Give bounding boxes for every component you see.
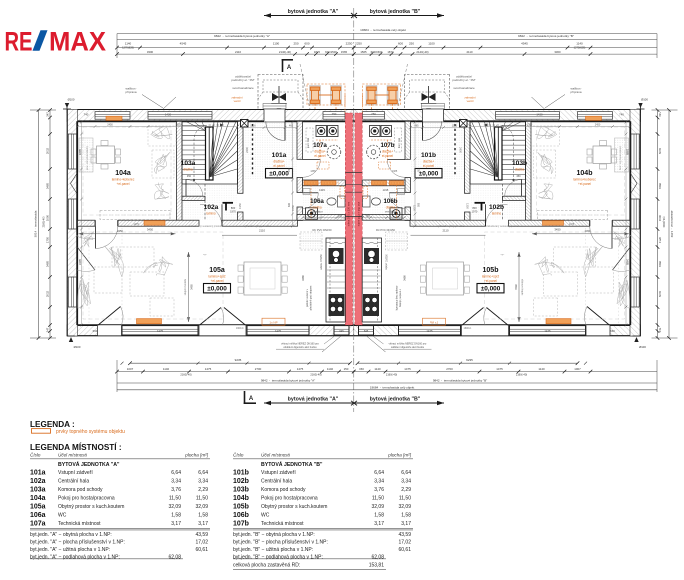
svg-text:1385: 1385 <box>392 170 398 173</box>
svg-text:2450: 2450 <box>585 229 591 233</box>
svg-text:4545: 4545 <box>180 42 187 46</box>
svg-text:+el.panel: +el.panel <box>484 279 497 283</box>
svg-text:2160(-40): 2160(-40) <box>42 216 45 227</box>
svg-text:dlažba: dlažba <box>183 167 193 171</box>
svg-text:105a: 105a <box>30 504 46 511</box>
svg-text:700: 700 <box>288 167 291 172</box>
svg-text:odsáv. DN150: odsáv. DN150 <box>320 254 323 270</box>
svg-text:ventil: ventil <box>234 99 241 103</box>
svg-text:103b: 103b <box>233 486 249 493</box>
svg-text:byt.jedn. "A" − užitná plocha: byt.jedn. "A" − užitná plocha v 1.NP: <box>30 547 110 553</box>
svg-text:750: 750 <box>332 112 337 116</box>
svg-text:1000: 1000 <box>658 214 662 221</box>
svg-text:2160(-40): 2160(-40) <box>310 372 321 376</box>
svg-text:1420: 1420 <box>165 112 172 116</box>
svg-text:11,50: 11,50 <box>372 496 384 502</box>
svg-text:bytová jednotka "B": bytová jednotka "B" <box>370 9 421 15</box>
svg-text:1565: 1565 <box>341 50 348 54</box>
svg-text:450: 450 <box>187 175 192 178</box>
svg-text:1007: 1007 <box>574 367 581 371</box>
svg-text:1750: 1750 <box>45 236 49 243</box>
svg-text:32,09: 32,09 <box>168 504 181 510</box>
svg-text:102a: 102a <box>204 204 219 211</box>
svg-text:3450: 3450 <box>147 228 154 232</box>
svg-text:600: 600 <box>304 42 309 46</box>
svg-text:104a: 104a <box>30 495 46 502</box>
svg-text:1,58: 1,58 <box>171 513 181 519</box>
svg-text:1475: 1475 <box>275 329 282 333</box>
svg-text:32,09: 32,09 <box>398 504 411 510</box>
svg-text:Ø100: Ø100 <box>641 98 648 102</box>
svg-text:BYTOVÁ JEDNOTKA "A": BYTOVÁ JEDNOTKA "A" <box>58 461 120 468</box>
svg-text:9842 - termofasáda bytové je: 9842 - termofasáda bytové jednotky "A" <box>214 34 270 38</box>
svg-text:3814 - termofasáda: 3814 - termofasáda <box>670 210 674 237</box>
svg-text:1475: 1475 <box>297 367 304 371</box>
svg-text:zabudovaný vestavěný prostor: zabudovaný vestavěný prostor <box>189 225 222 228</box>
svg-text:1420: 1420 <box>536 112 543 116</box>
svg-text:3480: 3480 <box>301 275 305 281</box>
svg-text:stupeň montáže: stupeň montáže <box>521 278 524 295</box>
svg-text:A: A <box>249 396 254 402</box>
svg-text:3,34: 3,34 <box>374 478 384 484</box>
svg-text:3,34: 3,34 <box>401 478 411 484</box>
svg-text:1100: 1100 <box>428 42 435 46</box>
svg-text:1350: 1350 <box>238 203 242 209</box>
svg-text:odsáv. DN150: odsáv. DN150 <box>385 254 388 270</box>
svg-text:1475: 1475 <box>569 223 575 226</box>
svg-text:3450: 3450 <box>554 228 561 232</box>
svg-text:2,29: 2,29 <box>401 487 411 493</box>
svg-text:103a: 103a <box>181 160 196 167</box>
svg-text:2140(-40): 2140(-40) <box>416 50 428 54</box>
svg-text:plocha [m²]: plocha [m²] <box>184 452 208 457</box>
svg-text:1100: 1100 <box>273 42 280 46</box>
svg-text:3,17: 3,17 <box>198 521 208 527</box>
svg-text:3485: 3485 <box>45 260 49 267</box>
svg-text:ventilátor: ventilátor <box>311 210 322 214</box>
svg-text:2160(-40): 2160(-40) <box>180 372 191 376</box>
svg-text:3,76: 3,76 <box>374 487 384 493</box>
svg-text:102b: 102b <box>233 478 249 485</box>
svg-text:4545: 4545 <box>521 42 528 46</box>
svg-text:1870: 1870 <box>387 50 394 54</box>
svg-text:465: 465 <box>289 125 294 128</box>
svg-text:1600-tl.: 1600-tl. <box>236 327 244 330</box>
svg-text:Pokoj pro hosta/pracovna: Pokoj pro hosta/pracovna <box>58 496 115 502</box>
svg-text:101b: 101b <box>233 469 249 476</box>
svg-text:bytová jednotka "A": bytová jednotka "A" <box>288 9 339 15</box>
svg-text:800: 800 <box>288 202 291 207</box>
svg-text:podružný el. "JM": podružný el. "JM" <box>452 78 475 82</box>
svg-text:el.panel: el.panel <box>314 154 325 158</box>
svg-text:2,29: 2,29 <box>198 487 208 493</box>
svg-text:byt.jedn. "A" − obytná plocha: byt.jedn. "A" − obytná plocha v 1.NP: <box>30 532 112 538</box>
svg-text:1475: 1475 <box>133 223 139 226</box>
svg-text:stěna DP1 ≥ 220 mm: stěna DP1 ≥ 220 mm <box>357 202 361 226</box>
svg-text:1350: 1350 <box>466 203 470 209</box>
svg-text:svod kanalizace: svod kanalizace <box>232 86 254 90</box>
svg-text:3300: 3300 <box>147 50 154 54</box>
svg-text:43,59: 43,59 <box>195 532 208 538</box>
svg-text:1x NP: 1x NP <box>269 320 277 324</box>
svg-text:2110: 2110 <box>259 229 265 233</box>
svg-text:2450: 2450 <box>107 124 113 127</box>
svg-text:60,61: 60,61 <box>398 547 411 553</box>
svg-text:Vstupní zádveří: Vstupní zádveří <box>58 470 93 476</box>
svg-text:3814 - termofasáda: 3814 - termofasáda <box>34 210 38 237</box>
svg-text:příprava: příprava <box>125 90 136 94</box>
svg-text:17,02: 17,02 <box>398 540 411 546</box>
svg-text:dlažba+: dlažba+ <box>314 149 325 153</box>
svg-text:1140: 1140 <box>163 367 170 371</box>
svg-text:107a: 107a <box>30 521 46 528</box>
svg-text:740: 740 <box>84 112 89 116</box>
svg-text:347: 347 <box>658 112 662 117</box>
svg-text:příprava: příprava <box>570 90 581 94</box>
svg-text:dlažba+: dlažba+ <box>273 159 284 163</box>
svg-text:Číslo: Číslo <box>30 451 41 457</box>
svg-text:103b: 103b <box>512 160 527 167</box>
svg-text:600/1500: 600/1500 <box>325 50 337 54</box>
svg-text:6,64: 6,64 <box>171 470 181 476</box>
svg-text:102b: 102b <box>489 204 504 211</box>
svg-text:106a: 106a <box>310 198 324 205</box>
svg-text:19684 - termofasáda celý obj: 19684 - termofasáda celý objekt <box>360 28 406 32</box>
svg-text:9842 - termofasáda bytové je: 9842 - termofasáda bytové jednotky "A" <box>261 379 315 383</box>
svg-text:3,34: 3,34 <box>171 478 181 484</box>
svg-text:3,34: 3,34 <box>198 478 208 484</box>
svg-text:2110: 2110 <box>235 50 241 54</box>
svg-text:1315: 1315 <box>383 188 389 192</box>
svg-text:vyp.: vyp. <box>203 254 207 256</box>
svg-text:645: 645 <box>364 329 369 333</box>
svg-text:celková plocha zastavěná RD:: celková plocha zastavěná RD: <box>233 562 300 568</box>
svg-text:podl. žlab: podl. žlab <box>398 137 401 148</box>
svg-text:bytová jednotka "A": bytová jednotka "A" <box>288 397 339 403</box>
svg-text:+el.panel: +el.panel <box>578 182 591 186</box>
svg-text:3485: 3485 <box>658 182 662 189</box>
svg-text:podl. žlab: podl. žlab <box>307 137 310 148</box>
svg-text:740: 740 <box>619 112 624 116</box>
svg-text:2032: 2032 <box>45 290 49 297</box>
svg-text:101a: 101a <box>272 152 287 159</box>
svg-text:Rtr PVC DN150: Rtr PVC DN150 <box>313 228 332 232</box>
svg-text:1,58: 1,58 <box>198 513 208 519</box>
svg-text:ventil: ventil <box>467 99 474 103</box>
svg-text:347: 347 <box>45 112 49 117</box>
svg-text:107b: 107b <box>233 521 249 528</box>
svg-text:32,09: 32,09 <box>195 504 208 510</box>
svg-text:svod kanalizace: svod kanalizace <box>453 86 475 90</box>
svg-text:byt.jedn. "A" − plocha přísluš: byt.jedn. "A" − plocha příslušenství v 1… <box>30 540 125 546</box>
svg-text:3,76: 3,76 <box>171 487 181 493</box>
svg-text:byt.jedn. "B" − obytná plocha: byt.jedn. "B" − obytná plocha v 1.NP: <box>233 532 315 538</box>
svg-text:stěna DP1 ≥ 220 mm: stěna DP1 ≥ 220 mm <box>346 202 350 226</box>
svg-text:výška dle výšky přesahu: výška dle výšky přesahu <box>437 225 465 228</box>
svg-text:lamino+spíž: lamino+spíž <box>208 274 226 278</box>
svg-text:1140: 1140 <box>125 42 132 46</box>
svg-text:1475: 1475 <box>205 367 212 371</box>
svg-text:1475: 1475 <box>544 329 551 333</box>
svg-text:645: 645 <box>339 329 344 333</box>
svg-text:prvky topného systému objektu: prvky topného systému objektu <box>56 429 125 435</box>
svg-text:750: 750 <box>371 112 376 116</box>
svg-text:dlažba: dlažba <box>515 167 525 171</box>
svg-text:250: 250 <box>293 42 298 46</box>
svg-text:250: 250 <box>409 42 414 46</box>
svg-text:11,50: 11,50 <box>399 496 411 502</box>
svg-text:1100: 1100 <box>452 125 458 128</box>
svg-text:Vstupní zádveří: Vstupní zádveří <box>261 470 296 476</box>
svg-text:stupeň montáže: stupeň montáže <box>184 278 187 295</box>
svg-text:1315: 1315 <box>319 188 325 192</box>
svg-text:3480: 3480 <box>403 275 407 281</box>
svg-text:105a: 105a <box>209 267 225 274</box>
svg-text:1140: 1140 <box>538 367 545 371</box>
svg-text:1325: 1325 <box>527 124 533 127</box>
svg-text:1550: 1550 <box>413 205 417 211</box>
svg-text:lamino+spíž: lamino+spíž <box>482 274 500 278</box>
svg-text:600: 600 <box>398 42 403 46</box>
svg-text:2110: 2110 <box>466 50 472 54</box>
svg-text:9235: 9235 <box>235 358 242 362</box>
svg-text:347: 347 <box>658 327 662 332</box>
svg-text:Číslo: Číslo <box>233 451 244 457</box>
svg-text:104a: 104a <box>115 170 131 177</box>
svg-text:6,64: 6,64 <box>198 470 208 476</box>
svg-text:A: A <box>287 65 292 71</box>
svg-text:32,09: 32,09 <box>371 504 384 510</box>
svg-text:Ø100: Ø100 <box>74 345 81 349</box>
svg-text:prac. stůl přemístitelný: prac. stůl přemístitelný <box>619 145 622 170</box>
svg-text:bytová jednotka "B": bytová jednotka "B" <box>370 397 421 403</box>
svg-text:Komora pod schody: Komora pod schody <box>58 487 103 493</box>
svg-text:150: 150 <box>344 367 349 371</box>
svg-text:2110: 2110 <box>442 229 448 233</box>
svg-text:byt.jedn. "B" − podlahová ploc: byt.jedn. "B" − podlahová plocha v 1.NP: <box>233 554 323 560</box>
svg-text:62,08: 62,08 <box>371 554 384 560</box>
svg-text:WC: WC <box>261 513 270 519</box>
svg-text:107b: 107b <box>380 142 394 149</box>
svg-text:2160(-40): 2160(-40) <box>662 216 665 227</box>
svg-text:Pokoj pro hosta/pracovna: Pokoj pro hosta/pracovna <box>261 496 318 502</box>
svg-text:1385: 1385 <box>310 170 316 173</box>
svg-text:1475: 1475 <box>426 329 433 333</box>
svg-text:lamino: lamino <box>492 211 502 215</box>
svg-text:1,58: 1,58 <box>374 513 384 519</box>
svg-text:9842 - termofasáda bytové je: 9842 - termofasáda bytové jednotky "B" <box>518 34 574 38</box>
svg-text:2250: 2250 <box>355 42 362 46</box>
svg-text:2700: 2700 <box>446 367 453 371</box>
svg-text:153,81: 153,81 <box>369 562 385 568</box>
svg-text:17,02: 17,02 <box>195 540 208 546</box>
svg-text:6,64: 6,64 <box>401 470 411 476</box>
svg-text:660: 660 <box>93 329 98 333</box>
svg-text:prac. stůl přemístitelný: prac. stůl přemístitelný <box>86 145 89 170</box>
svg-text:2450: 2450 <box>117 229 123 233</box>
svg-text:3300: 3300 <box>554 50 561 54</box>
svg-text:±0,000: ±0,000 <box>269 171 289 178</box>
svg-text:102a: 102a <box>30 478 46 485</box>
svg-text:2250: 2250 <box>346 42 353 46</box>
svg-text:62,08: 62,08 <box>168 554 181 560</box>
svg-text:1565: 1565 <box>360 50 367 54</box>
svg-text:byt.jedn. "B" − plocha přísluš: byt.jedn. "B" − plocha příslušenství v 1… <box>233 540 328 546</box>
svg-text:1475: 1475 <box>404 367 411 371</box>
svg-text:plocha [m²]: plocha [m²] <box>387 452 411 457</box>
svg-text:11,50: 11,50 <box>196 496 208 502</box>
svg-text:3485: 3485 <box>514 284 518 290</box>
svg-text:lamino+koberec: lamino+koberec <box>112 177 135 181</box>
svg-text:9842 - termofasáda bytové je: 9842 - termofasáda bytové jednotky "B" <box>433 379 487 383</box>
svg-text:2032: 2032 <box>45 147 49 154</box>
svg-text:předstěně pod stropem: předstěně pod stropem <box>310 286 313 311</box>
svg-text:2032: 2032 <box>658 147 662 154</box>
svg-text:3,17: 3,17 <box>374 521 384 527</box>
svg-text:3,17: 3,17 <box>401 521 411 527</box>
svg-text:450: 450 <box>516 175 521 178</box>
svg-text:Obytný prostor s kuch.koutem: Obytný prostor s kuch.koutem <box>58 504 124 510</box>
svg-text:1000: 1000 <box>45 214 49 221</box>
svg-text:2400: 2400 <box>459 147 463 153</box>
svg-text:1,58: 1,58 <box>401 513 411 519</box>
svg-text:1007: 1007 <box>127 367 134 371</box>
svg-text:LEGENDA :: LEGENDA : <box>30 420 75 429</box>
svg-text:800: 800 <box>231 206 236 210</box>
svg-text:3485: 3485 <box>190 284 194 290</box>
svg-text:Technická místnost: Technická místnost <box>261 521 304 527</box>
svg-text:1970: 1970 <box>230 210 236 214</box>
svg-text:1750: 1750 <box>658 236 662 243</box>
svg-text:oddělení digestoře akci budou: oddělení digestoře akci budou <box>391 346 425 349</box>
svg-text:11,50: 11,50 <box>169 496 181 502</box>
svg-text:2700: 2700 <box>255 367 262 371</box>
svg-text:3485: 3485 <box>45 182 49 189</box>
svg-text:150: 150 <box>359 367 364 371</box>
svg-text:byt.jedn. "B" − užitná plocha: byt.jedn. "B" − užitná plocha v 1.NP: <box>233 547 313 553</box>
svg-text:2032: 2032 <box>658 290 662 297</box>
svg-text:1140: 1140 <box>374 367 381 371</box>
svg-text:347: 347 <box>45 327 49 332</box>
svg-text:2400: 2400 <box>245 147 249 153</box>
svg-text:Centrální hala: Centrální hala <box>261 478 292 484</box>
svg-text:1550: 1550 <box>291 205 295 211</box>
svg-text:106b: 106b <box>383 198 397 205</box>
svg-text:dlažba+: dlažba+ <box>423 159 434 163</box>
svg-text:103a: 103a <box>30 486 46 493</box>
svg-text:101a: 101a <box>30 469 46 476</box>
svg-text:700: 700 <box>417 168 420 173</box>
svg-text:9235: 9235 <box>466 358 473 362</box>
svg-text:Ø100: Ø100 <box>68 98 75 102</box>
svg-text:660: 660 <box>610 329 615 333</box>
svg-text:el.panel: el.panel <box>382 154 393 158</box>
svg-text:1100: 1100 <box>250 125 256 128</box>
svg-text:104b: 104b <box>577 170 593 177</box>
svg-text:RE: RE <box>5 27 33 57</box>
svg-text:2160(-40): 2160(-40) <box>386 372 397 376</box>
svg-text:el.panel: el.panel <box>423 164 434 168</box>
svg-text:105b: 105b <box>483 267 499 274</box>
svg-text:2140(-40): 2140(-40) <box>279 50 291 54</box>
svg-text:Technická místnost: Technická místnost <box>58 521 101 527</box>
svg-text:107a: 107a <box>313 142 327 149</box>
svg-text:oddělení digestoře akci budou: oddělení digestoře akci budou <box>283 346 317 349</box>
svg-text:106b: 106b <box>233 512 249 519</box>
svg-text:MAX: MAX <box>49 27 106 57</box>
svg-text:+el.panel: +el.panel <box>116 182 129 186</box>
svg-text:výška dle výšky přesahu: výška dle výšky přesahu <box>243 225 271 228</box>
svg-text:106a: 106a <box>30 512 46 519</box>
svg-text:104b: 104b <box>233 495 249 502</box>
svg-text:předstěně pod stropem: předstěně pod stropem <box>395 286 398 311</box>
svg-text:zabudovaný vestavěný prostor: zabudovaný vestavěný prostor <box>486 225 519 228</box>
svg-text:Účel místnosti: Účel místnosti <box>58 451 88 457</box>
svg-text:3485: 3485 <box>658 260 662 267</box>
svg-text:vyp.: vyp. <box>500 254 504 256</box>
svg-text:ventilátor: ventilátor <box>385 210 396 214</box>
svg-text:3,17: 3,17 <box>171 521 181 527</box>
svg-text:dlažba+: dlažba+ <box>382 149 393 153</box>
svg-text:lamino: lamino <box>206 211 216 215</box>
svg-text:podružný el. "JM": podružný el. "JM" <box>231 78 254 82</box>
svg-text:Ø100: Ø100 <box>639 345 646 349</box>
svg-text:43,59: 43,59 <box>398 532 411 538</box>
svg-text:1140: 1140 <box>327 367 334 371</box>
svg-text:Centrální hala: Centrální hala <box>58 478 89 484</box>
svg-text:800: 800 <box>417 203 420 208</box>
svg-text:1600-tl.: 1600-tl. <box>464 327 472 330</box>
svg-text:60,61: 60,61 <box>195 547 208 553</box>
svg-text:BYTOVÁ JEDNOTKA "B": BYTOVÁ JEDNOTKA "B" <box>261 461 323 468</box>
svg-text:lamino+koberec: lamino+koberec <box>573 177 596 181</box>
svg-text:±0,000: ±0,000 <box>419 171 439 178</box>
svg-text:105b: 105b <box>233 504 249 511</box>
svg-text:19684 - termofasáda celý obj: 19684 - termofasáda celý objekt <box>370 385 415 389</box>
svg-text:LEGENDA MÍSTNOSTÍ :: LEGENDA MÍSTNOSTÍ : <box>30 442 122 452</box>
svg-text:byt.jedn. "A" − podlahová ploc: byt.jedn. "A" − podlahová plocha v 1.NP: <box>30 554 120 560</box>
svg-text:Rtr PVC DN150: Rtr PVC DN150 <box>376 228 395 232</box>
svg-text:±0,000: ±0,000 <box>207 286 227 293</box>
svg-text:WC: WC <box>58 513 67 519</box>
svg-text:2450: 2450 <box>595 124 601 127</box>
svg-text:1475: 1475 <box>496 367 503 371</box>
svg-text:el.panel: el.panel <box>273 164 284 168</box>
svg-text:±0,000: ±0,000 <box>481 286 501 293</box>
svg-text:6,64: 6,64 <box>374 470 384 476</box>
svg-text:1970: 1970 <box>472 210 478 214</box>
svg-text:1475: 1475 <box>157 329 164 333</box>
svg-text:Komora pod schody: Komora pod schody <box>261 487 306 493</box>
svg-text:1325: 1325 <box>175 124 181 127</box>
svg-text:1x NP: 1x NP <box>430 320 438 324</box>
svg-text:+el.panel: +el.panel <box>210 279 223 283</box>
svg-text:Obytný prostor s kuch.koutem: Obytný prostor s kuch.koutem <box>261 504 327 510</box>
svg-text:101b: 101b <box>421 152 436 159</box>
svg-text:Účel místnosti: Účel místnosti <box>261 451 291 457</box>
svg-text:800: 800 <box>472 206 477 210</box>
svg-text:1140: 1140 <box>576 42 583 46</box>
